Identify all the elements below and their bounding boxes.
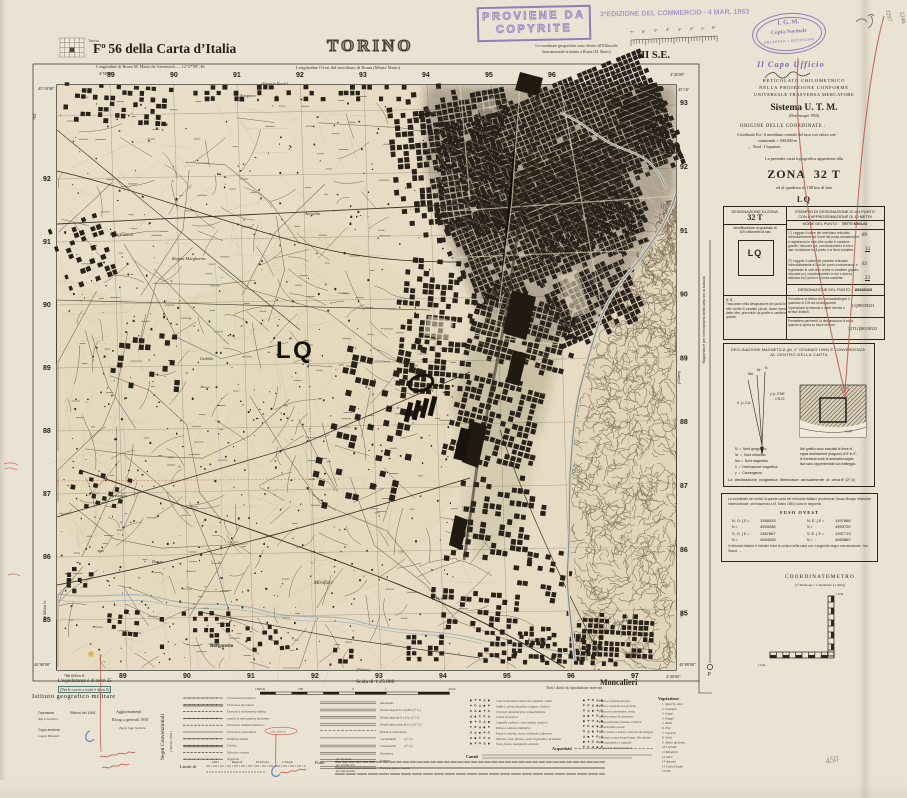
svg-text:a dir allarme: a dir allarme bbox=[270, 730, 287, 734]
svg-text:450: 450 bbox=[824, 753, 840, 766]
svg-text:2246: 2246 bbox=[898, 11, 906, 24]
svg-text:2297: 2297 bbox=[884, 9, 892, 22]
